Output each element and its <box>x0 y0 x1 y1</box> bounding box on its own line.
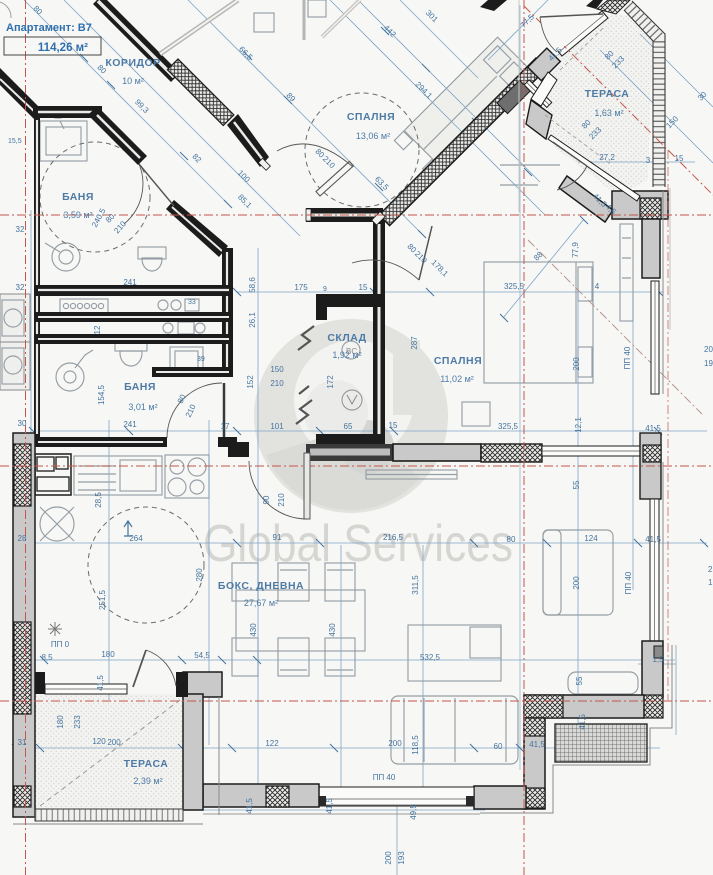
svg-text:200: 200 <box>388 739 402 748</box>
svg-text:3,59 м²: 3,59 м² <box>63 210 92 220</box>
svg-text:41,5: 41,5 <box>245 798 254 814</box>
svg-text:122: 122 <box>265 739 279 748</box>
svg-text:3,01 м²: 3,01 м² <box>128 402 157 412</box>
svg-text:20: 20 <box>704 345 713 354</box>
svg-text:31: 31 <box>18 738 27 747</box>
svg-text:1,63 м²: 1,63 м² <box>594 108 623 118</box>
svg-text:15: 15 <box>359 283 368 292</box>
svg-text:32: 32 <box>16 225 25 234</box>
svg-text:77,9: 77,9 <box>571 242 580 258</box>
svg-text:КОРИДОР: КОРИДОР <box>105 57 160 69</box>
svg-text:Global Services: Global Services <box>203 515 513 573</box>
svg-text:210: 210 <box>270 379 284 388</box>
svg-text:287: 287 <box>410 336 419 350</box>
svg-text:19: 19 <box>704 359 713 368</box>
svg-text:150: 150 <box>270 365 284 374</box>
svg-text:ПП 40: ПП 40 <box>373 773 396 782</box>
svg-text:15: 15 <box>675 154 684 163</box>
svg-text:90: 90 <box>262 495 271 504</box>
svg-text:32: 32 <box>16 283 25 292</box>
svg-text:ТЕРАСА: ТЕРАСА <box>585 88 630 100</box>
svg-text:120: 120 <box>92 737 106 746</box>
svg-text:1: 1 <box>708 578 713 587</box>
svg-text:118,5: 118,5 <box>411 735 420 755</box>
svg-text:80: 80 <box>507 535 516 544</box>
svg-text:15,5: 15,5 <box>8 138 22 145</box>
svg-text:27,2: 27,2 <box>599 153 615 162</box>
svg-text:193: 193 <box>397 851 406 865</box>
svg-text:12,1: 12,1 <box>574 417 583 433</box>
svg-text:241: 241 <box>123 420 137 429</box>
svg-text:216,5: 216,5 <box>383 533 404 542</box>
svg-text:200: 200 <box>572 576 581 590</box>
svg-text:172: 172 <box>326 375 335 389</box>
svg-text:180: 180 <box>56 715 65 729</box>
svg-text:54,5: 54,5 <box>194 651 210 660</box>
svg-text:БОКС, ДНЕВНА: БОКС, ДНЕВНА <box>218 580 304 592</box>
svg-text:114,26 м²: 114,26 м² <box>38 42 88 54</box>
svg-text:17: 17 <box>221 422 230 431</box>
svg-text:124: 124 <box>584 534 598 543</box>
svg-text:200: 200 <box>572 357 581 371</box>
svg-text:13,06 м²: 13,06 м² <box>356 131 390 141</box>
svg-text:311,5: 311,5 <box>411 575 420 595</box>
svg-text:430: 430 <box>249 623 258 637</box>
svg-text:4: 4 <box>595 282 600 291</box>
svg-text:55: 55 <box>575 676 584 685</box>
svg-text:8,5: 8,5 <box>41 653 53 662</box>
svg-text:280: 280 <box>195 568 204 582</box>
svg-text:200: 200 <box>384 851 393 865</box>
svg-text:41,5: 41,5 <box>578 714 587 730</box>
svg-text:26,1: 26,1 <box>248 312 257 328</box>
svg-text:9: 9 <box>323 286 327 293</box>
svg-text:41,5: 41,5 <box>645 535 661 544</box>
svg-text:152: 152 <box>246 375 255 389</box>
svg-text:БАНЯ: БАНЯ <box>62 191 94 203</box>
svg-text:41,5: 41,5 <box>529 740 545 749</box>
svg-text:11,02 м²: 11,02 м² <box>440 374 474 384</box>
svg-text:41,5: 41,5 <box>96 675 105 691</box>
svg-text:3: 3 <box>646 156 651 165</box>
svg-text:ПП 40: ПП 40 <box>624 571 633 594</box>
svg-text:ТЕРАСА: ТЕРАСА <box>124 758 169 770</box>
svg-text:200: 200 <box>107 738 121 747</box>
svg-text:532,5: 532,5 <box>420 653 441 662</box>
svg-text:28,5: 28,5 <box>94 492 103 508</box>
svg-text:СКЛАД: СКЛАД <box>327 332 366 344</box>
svg-text:55: 55 <box>572 480 581 489</box>
svg-text:2: 2 <box>708 565 713 574</box>
svg-text:210: 210 <box>277 493 286 507</box>
svg-text:251,5: 251,5 <box>98 589 107 610</box>
svg-text:СПАЛНЯ: СПАЛНЯ <box>434 355 482 367</box>
svg-text:101: 101 <box>270 422 284 431</box>
svg-text:60: 60 <box>494 742 503 751</box>
svg-text:СПАЛНЯ: СПАЛНЯ <box>347 111 395 123</box>
svg-text:154,5: 154,5 <box>97 384 106 405</box>
svg-text:49,5: 49,5 <box>409 804 418 820</box>
svg-text:241: 241 <box>123 278 137 287</box>
svg-text:1,92 м²: 1,92 м² <box>332 350 361 360</box>
svg-text:325,5: 325,5 <box>498 422 519 431</box>
svg-text:33: 33 <box>188 299 196 306</box>
svg-text:30: 30 <box>18 419 27 428</box>
svg-text:41,5: 41,5 <box>645 424 661 433</box>
svg-text:БАНЯ: БАНЯ <box>124 381 156 393</box>
svg-text:ПП 0: ПП 0 <box>51 640 70 649</box>
svg-text:1,5: 1,5 <box>652 655 664 664</box>
svg-text:28: 28 <box>18 534 27 543</box>
svg-text:430: 430 <box>328 623 337 637</box>
svg-text:2,39 м²: 2,39 м² <box>133 776 162 786</box>
svg-text:58,6: 58,6 <box>248 277 257 293</box>
svg-text:39: 39 <box>197 356 205 363</box>
svg-text:325,5: 325,5 <box>504 282 525 291</box>
svg-text:180: 180 <box>101 650 115 659</box>
svg-text:65: 65 <box>344 422 353 431</box>
svg-text:15: 15 <box>389 421 398 430</box>
svg-text:233: 233 <box>73 715 82 729</box>
svg-text:41,5: 41,5 <box>325 798 334 814</box>
svg-text:10 м²: 10 м² <box>122 76 144 86</box>
svg-text:12: 12 <box>93 325 102 334</box>
svg-text:27,67 м²: 27,67 м² <box>244 598 278 608</box>
svg-text:91: 91 <box>273 533 282 542</box>
svg-text:264: 264 <box>129 534 143 543</box>
svg-text:ПП 40: ПП 40 <box>623 346 632 369</box>
svg-text:175: 175 <box>294 283 308 292</box>
svg-text:Апартамент: В7: Апартамент: В7 <box>6 22 92 34</box>
